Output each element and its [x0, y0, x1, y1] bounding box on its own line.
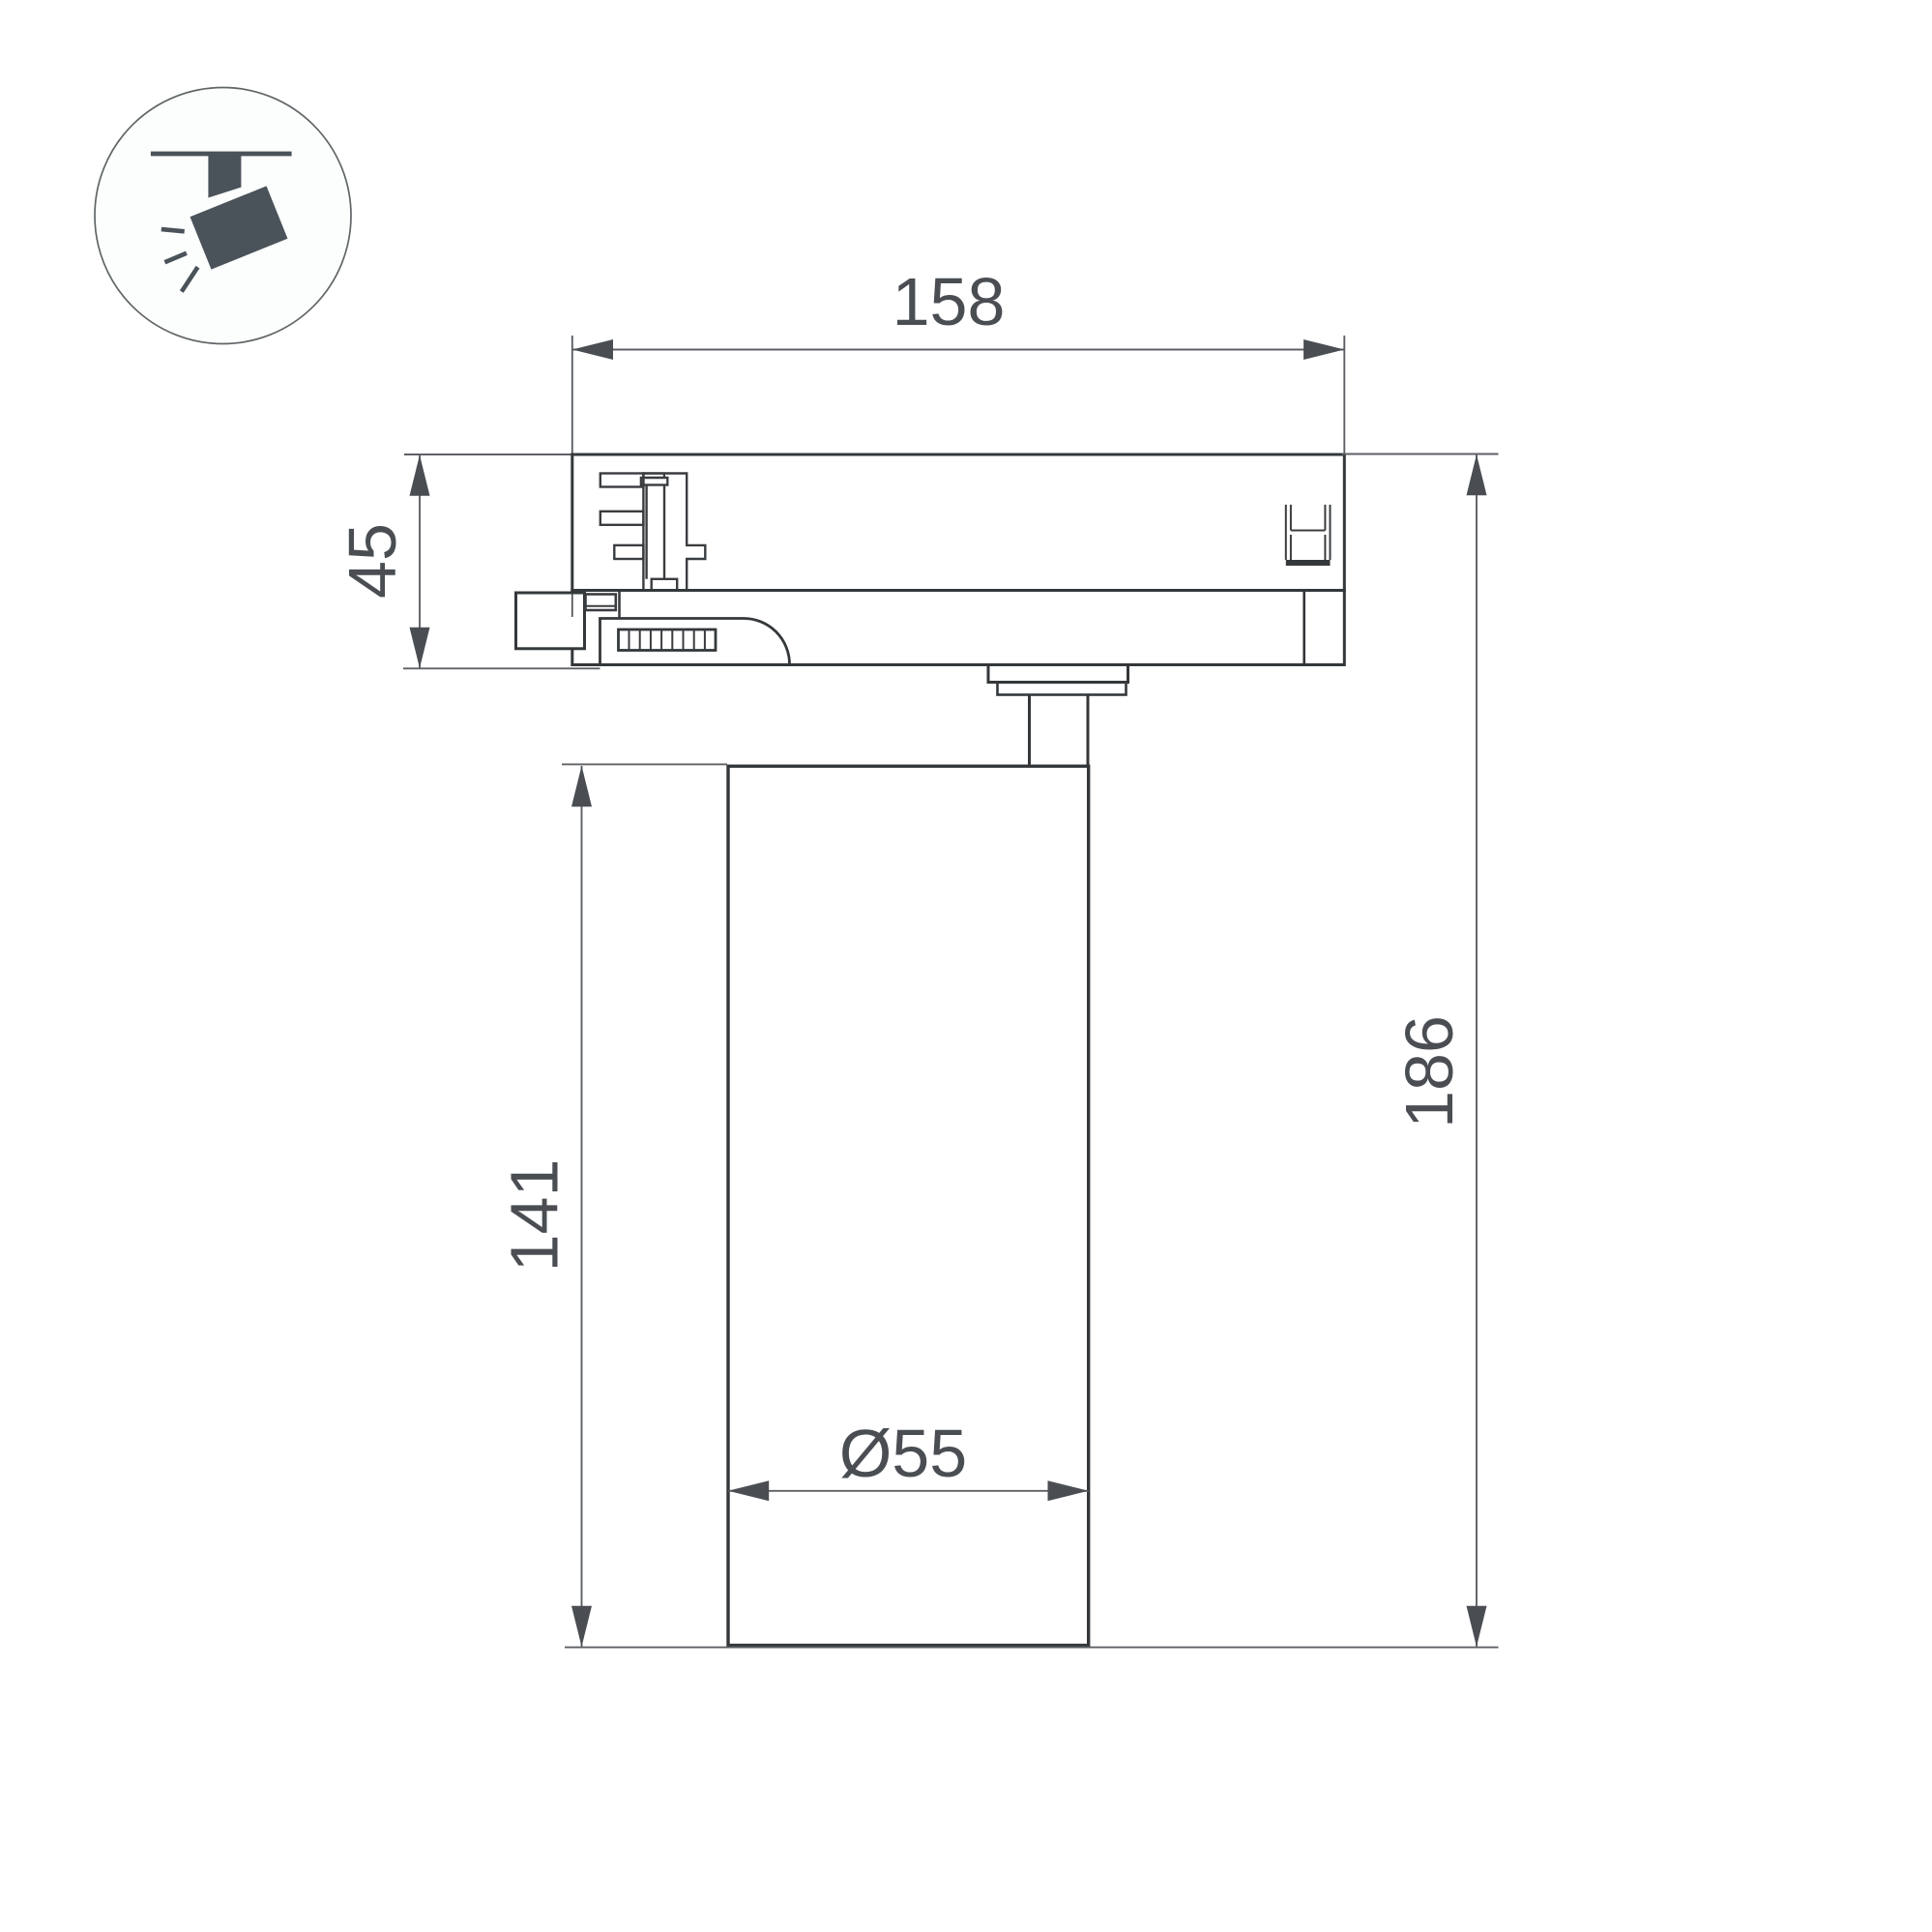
svg-text:Ø55: Ø55: [839, 1416, 967, 1491]
svg-text:141: 141: [497, 1159, 572, 1273]
svg-text:186: 186: [1391, 1015, 1467, 1128]
svg-text:158: 158: [893, 264, 1006, 339]
svg-text:45: 45: [335, 523, 410, 599]
